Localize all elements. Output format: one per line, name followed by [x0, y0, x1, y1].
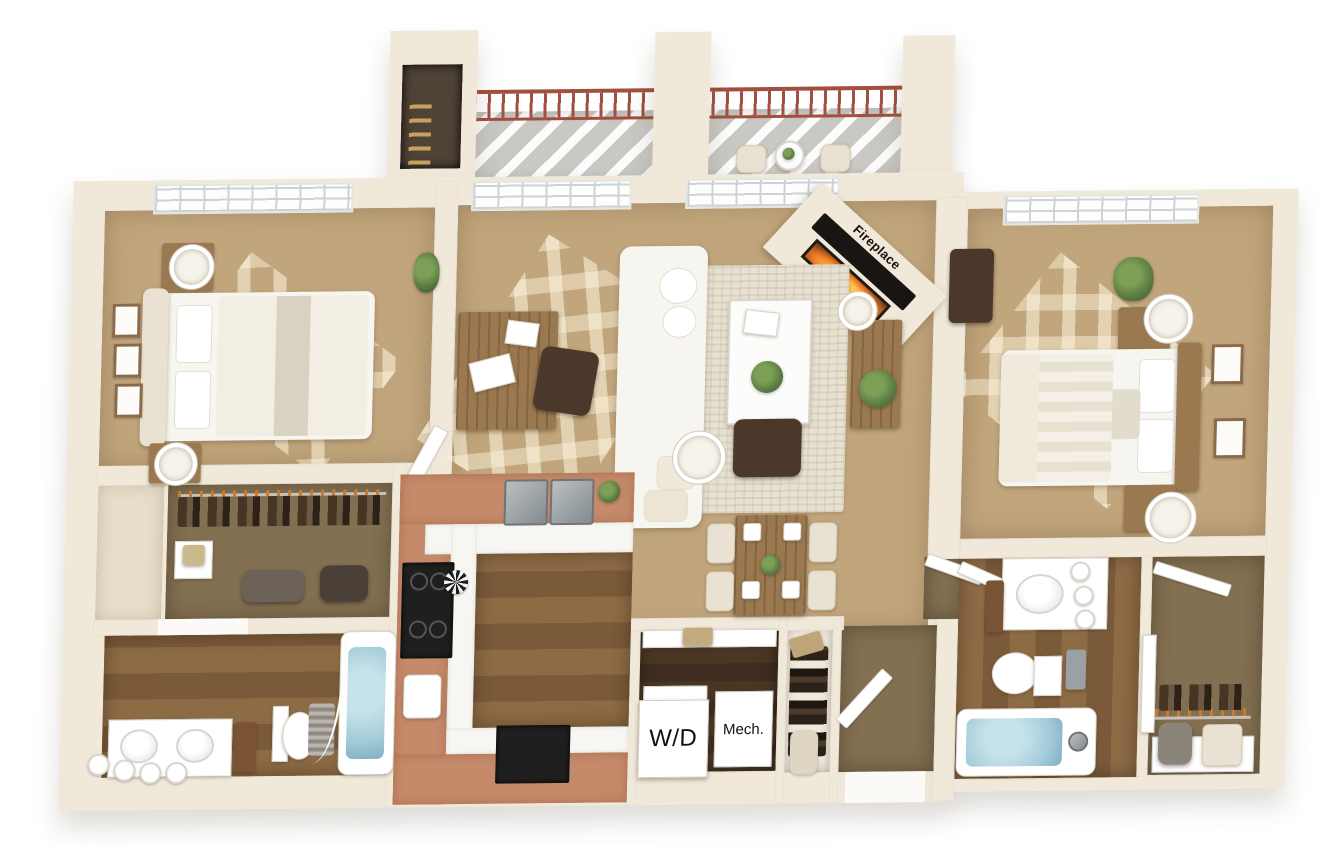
- throw-blanket: [274, 296, 311, 436]
- place-setting: [782, 581, 800, 599]
- kitchen-sink-basin: [549, 479, 594, 525]
- place-setting: [743, 523, 761, 541]
- bathtub-water: [346, 647, 387, 759]
- chimney-ladder: [408, 99, 432, 165]
- desk-papers: [504, 320, 540, 348]
- burner: [409, 620, 427, 638]
- sofa-pillow: [662, 306, 697, 338]
- wall-bedroomleft-south: [96, 462, 432, 486]
- apartment-3d-floorplan: Fireplace: [0, 0, 1336, 846]
- dining-chair: [705, 571, 734, 611]
- sofa-pillow: [659, 268, 698, 304]
- dining-chair: [706, 523, 735, 563]
- floorplan-canvas: Fireplace: [0, 0, 1336, 846]
- coffee-maker: [403, 674, 442, 718]
- bathroom-left-door-opening: [158, 618, 248, 635]
- kitchen-walkway-floor: [472, 552, 632, 728]
- bed-left: [145, 291, 375, 441]
- pillow: [1138, 359, 1175, 413]
- storage-bags: [320, 565, 369, 602]
- kitchen-sink-basin: [503, 479, 548, 525]
- headboard: [139, 288, 169, 446]
- folded-clothes-cream: [1202, 724, 1243, 766]
- patio-chair-right: [820, 144, 851, 172]
- toilet-tank: [1033, 656, 1062, 696]
- desk-chair: [532, 345, 601, 417]
- living-balcony-door: [471, 179, 632, 211]
- pillow: [1137, 419, 1174, 473]
- patio-chair-left: [736, 145, 767, 173]
- headboard: [1174, 342, 1202, 490]
- bedroom-armchair: [948, 249, 994, 323]
- folded-clothes-gray: [1158, 722, 1193, 764]
- accent-chair: [733, 419, 802, 478]
- potted-plant: [1113, 257, 1154, 301]
- burner: [410, 572, 428, 590]
- folded-blanket: [998, 354, 1039, 482]
- wall-art-frame: [113, 344, 142, 378]
- ironing-board: [789, 730, 818, 774]
- hanging-clothes: [177, 495, 386, 527]
- closet-bench: [242, 570, 305, 603]
- hanging-clothes: [1159, 684, 1248, 711]
- bedroom-left-window: [153, 182, 354, 214]
- mechanical-closet-unit: Mech.: [714, 691, 774, 768]
- bathtub-water: [966, 718, 1063, 767]
- wall-bedroomright-south: [960, 536, 1268, 559]
- bath-shelf: [1065, 650, 1086, 690]
- bed-right: [998, 348, 1197, 486]
- vanity-cabinet: [985, 580, 1004, 632]
- burner: [429, 620, 447, 638]
- wall-art-frame: [1211, 344, 1244, 384]
- place-setting: [783, 523, 801, 541]
- pillow: [175, 305, 212, 363]
- bathroom-cabinet: [233, 722, 256, 772]
- dining-chair: [809, 522, 838, 562]
- closet-box: [182, 545, 204, 565]
- wall-art-frame: [112, 304, 141, 338]
- balcony-pillar-left: [652, 32, 712, 183]
- washer-dryer-unit: W/D: [637, 699, 709, 778]
- pillow: [174, 371, 211, 429]
- laundry-basket: [682, 627, 712, 645]
- chevron-duvet: [1035, 353, 1114, 482]
- wall-art-frame: [1213, 418, 1246, 458]
- place-setting: [742, 581, 760, 599]
- potted-plant: [413, 252, 440, 292]
- entry-hall-floor: [837, 625, 937, 772]
- mechanical-label: Mech.: [723, 720, 764, 737]
- coffee-table-book: [743, 309, 780, 337]
- washer-dryer-label: W/D: [649, 725, 698, 754]
- bedroom-right-window: [1003, 193, 1200, 225]
- hallway-alcove-floor: [95, 483, 164, 622]
- dishwasher: [495, 725, 570, 784]
- wall-art-frame: [114, 383, 143, 417]
- dining-chair: [807, 570, 836, 610]
- wall-entry-wing: [933, 619, 958, 801]
- balcony-pillar-right: [900, 35, 956, 180]
- front-door-opening: [845, 771, 926, 803]
- sofa-pillow: [644, 490, 689, 522]
